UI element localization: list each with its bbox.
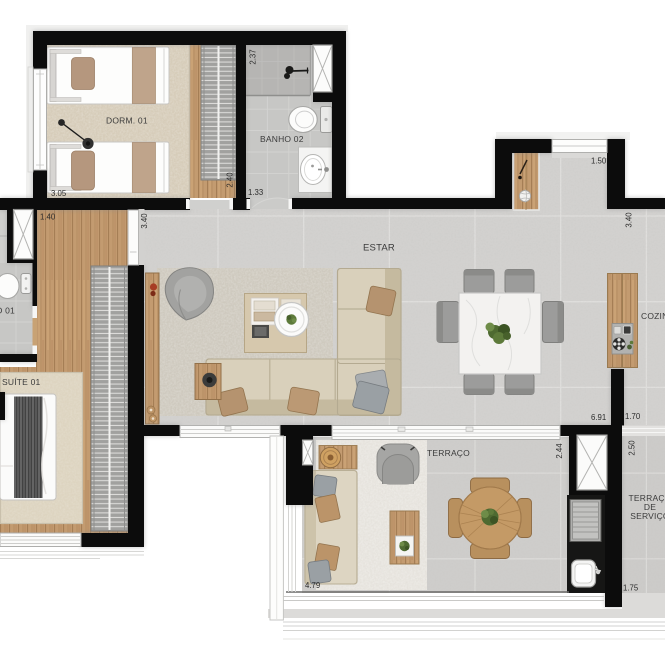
- svg-text:2.44: 2.44: [555, 443, 564, 459]
- svg-text:3.05: 3.05: [51, 189, 67, 198]
- svg-text:1.70: 1.70: [625, 412, 641, 421]
- svg-text:SUÍTE 01: SUÍTE 01: [2, 377, 41, 387]
- svg-text:SERVIÇO: SERVIÇO: [630, 511, 665, 521]
- svg-text:COZINHA: COZINHA: [641, 311, 665, 321]
- svg-text:6.91: 6.91: [591, 413, 606, 422]
- svg-text:3.40: 3.40: [625, 212, 634, 228]
- svg-text:3.40: 3.40: [140, 213, 149, 229]
- svg-text:DORM. 01: DORM. 01: [106, 116, 148, 126]
- svg-text:2.50: 2.50: [628, 440, 637, 456]
- svg-text:2.40: 2.40: [226, 172, 235, 188]
- svg-text:ESTAR: ESTAR: [363, 243, 395, 254]
- svg-text:1.50: 1.50: [591, 157, 607, 166]
- svg-text:TERRAÇO: TERRAÇO: [427, 448, 470, 458]
- svg-text:4.79: 4.79: [305, 581, 320, 590]
- svg-text:BANHO 01: BANHO 01: [0, 306, 15, 316]
- svg-text:BANHO 02: BANHO 02: [260, 134, 304, 144]
- svg-text:1.33: 1.33: [248, 188, 263, 197]
- svg-text:2.37: 2.37: [249, 49, 258, 64]
- svg-text:1.75: 1.75: [623, 584, 639, 593]
- svg-text:1.40: 1.40: [40, 213, 56, 222]
